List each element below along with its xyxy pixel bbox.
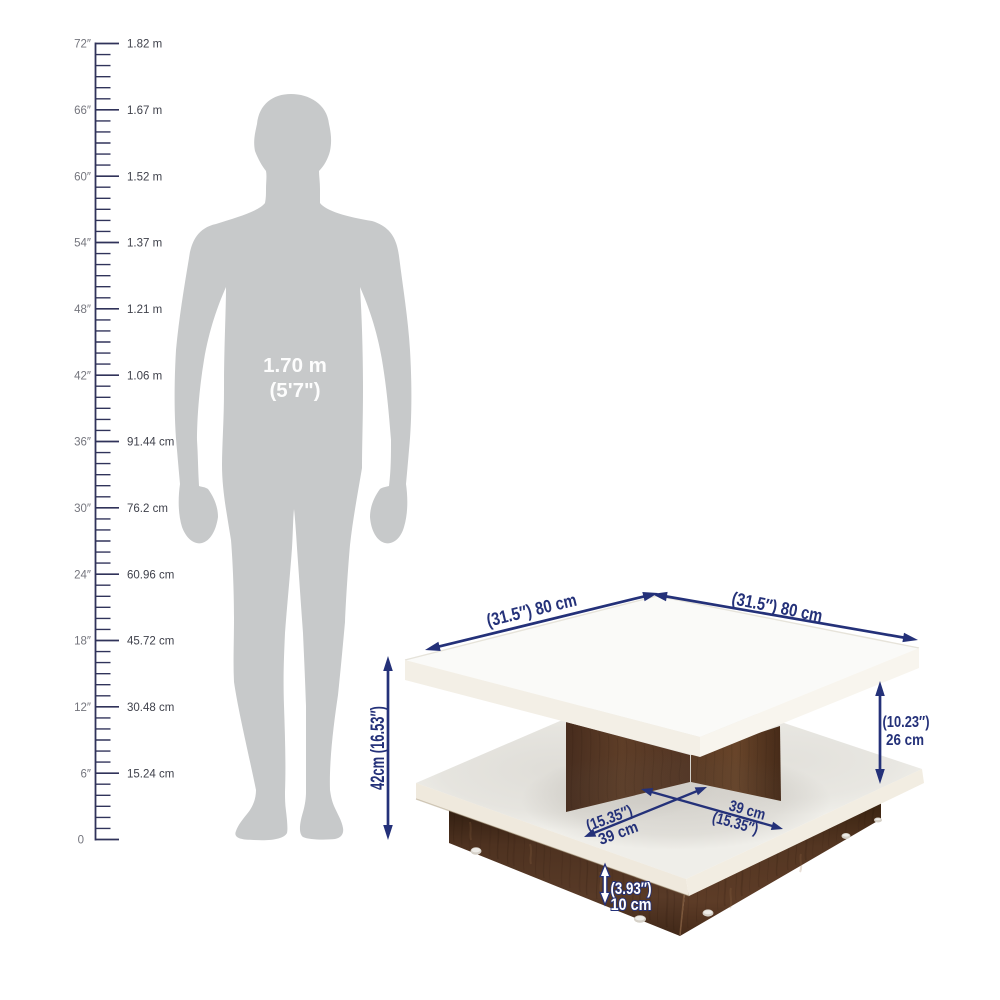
svg-text:24″: 24″ [74, 569, 91, 581]
svg-text:1.52 m: 1.52 m [127, 171, 162, 183]
svg-text:1.06 m: 1.06 m [127, 370, 162, 382]
svg-text:1.70 m: 1.70 m [263, 354, 327, 377]
svg-text:42cm (16.53″): 42cm (16.53″) [367, 706, 389, 790]
svg-text:10 cm: 10 cm [611, 896, 652, 914]
svg-text:60.96 cm: 60.96 cm [127, 569, 174, 581]
svg-text:15.24 cm: 15.24 cm [127, 768, 174, 780]
svg-text:1.67 m: 1.67 m [127, 105, 162, 117]
svg-text:45.72 cm: 45.72 cm [127, 636, 174, 648]
svg-text:26 cm: 26 cm [886, 732, 924, 749]
svg-text:1.21 m: 1.21 m [127, 304, 162, 316]
svg-text:12″: 12″ [74, 702, 91, 714]
svg-text:66″: 66″ [74, 105, 91, 117]
svg-text:91.44 cm: 91.44 cm [127, 437, 174, 449]
svg-text:30″: 30″ [74, 503, 91, 515]
svg-text:30.48 cm: 30.48 cm [127, 702, 174, 714]
svg-text:54″: 54″ [74, 238, 91, 250]
svg-text:6″: 6″ [81, 768, 91, 780]
svg-text:76.2 cm: 76.2 cm [127, 503, 168, 515]
svg-text:18″: 18″ [74, 636, 91, 648]
svg-text:(5'7"): (5'7") [269, 379, 320, 402]
svg-text:60″: 60″ [74, 171, 91, 183]
svg-text:48″: 48″ [74, 304, 91, 316]
svg-text:42″: 42″ [74, 370, 91, 382]
svg-text:1.37 m: 1.37 m [127, 238, 162, 250]
svg-text:0: 0 [78, 835, 84, 847]
svg-text:1.82 m: 1.82 m [127, 39, 162, 51]
svg-text:36″: 36″ [74, 437, 91, 449]
svg-text:72″: 72″ [74, 39, 91, 51]
svg-text:(10.23″): (10.23″) [883, 714, 930, 731]
